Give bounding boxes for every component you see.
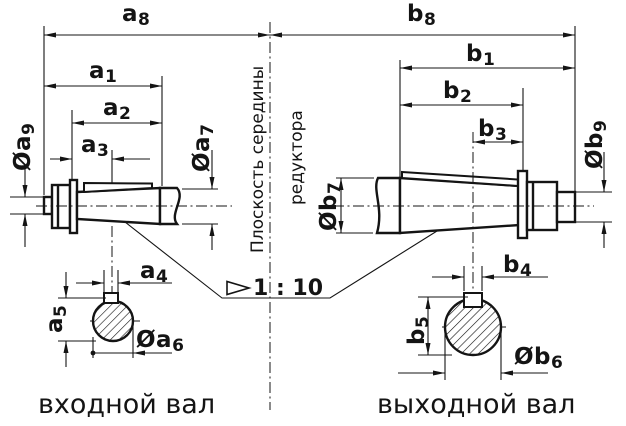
output-shaft-stub <box>557 192 575 222</box>
input-section-circle <box>93 301 133 341</box>
center-plane-label-line1: Плоскость середины <box>248 66 268 253</box>
technical-drawing: 1 : 10 a8 a1 a2 a3 a4 Øa6 Øa9 Øa7 a5 b8 … <box>0 0 626 426</box>
shaft-dimension-diagram: 1 : 10 a8 a1 a2 a3 a4 Øa6 Øa9 Øa7 a5 b8 … <box>0 0 626 426</box>
dim-dot-a6 <box>91 351 96 356</box>
output-shaft-caption: выходной вал <box>377 389 575 420</box>
taper-ratio-label: 1 : 10 <box>253 276 323 301</box>
input-shaft-caption: входной вал <box>38 389 215 420</box>
output-shaft-drawing <box>376 171 575 238</box>
output-shaft-washer <box>518 171 527 238</box>
input-section-keyway <box>104 293 118 303</box>
output-section-keyway <box>464 293 482 307</box>
center-plane-label-line2: редуктора <box>287 110 307 205</box>
